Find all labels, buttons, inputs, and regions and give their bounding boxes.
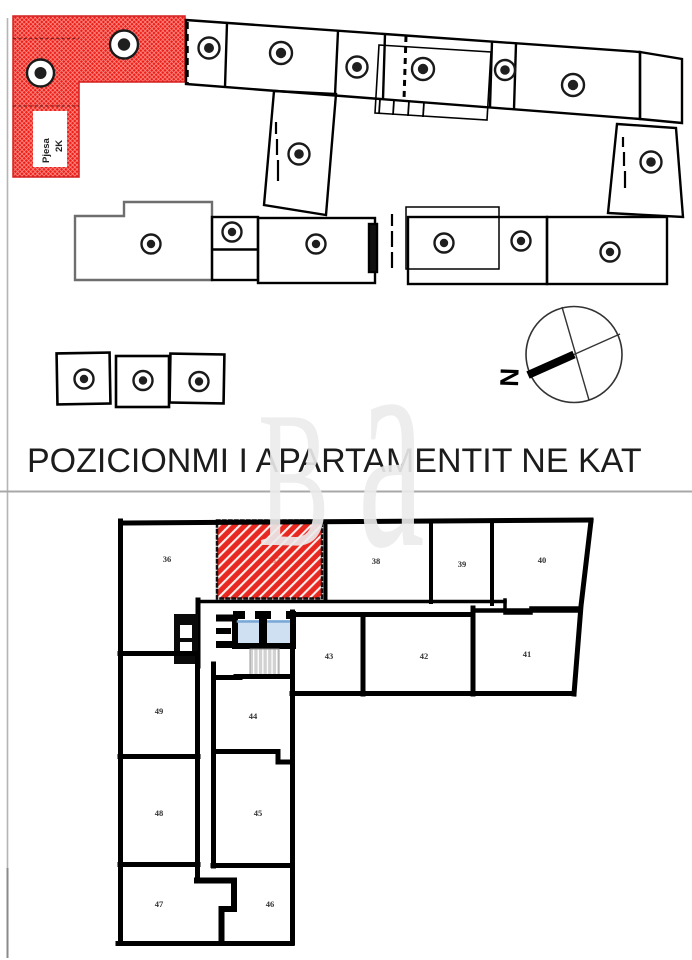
svg-text:Pjesa: Pjesa <box>41 137 52 163</box>
svg-text:POZICIONMI I APARTAMENTIT NE K: POZICIONMI I APARTAMENTIT NE KAT <box>27 442 642 480</box>
svg-text:a: a <box>358 279 425 610</box>
svg-text:B: B <box>258 373 330 589</box>
svg-text:43: 43 <box>325 651 334 661</box>
svg-text:41: 41 <box>523 649 532 659</box>
svg-text:N: N <box>494 367 525 387</box>
svg-text:40: 40 <box>538 555 547 565</box>
svg-text:46: 46 <box>266 899 275 909</box>
svg-text:36: 36 <box>163 554 172 564</box>
svg-text:47: 47 <box>155 899 164 909</box>
svg-text:2K: 2K <box>54 140 65 152</box>
svg-text:48: 48 <box>155 808 164 818</box>
svg-text:45: 45 <box>254 808 263 818</box>
svg-text:39: 39 <box>458 559 467 569</box>
svg-text:42: 42 <box>420 651 429 661</box>
svg-text:49: 49 <box>155 706 164 716</box>
svg-text:44: 44 <box>249 711 258 721</box>
